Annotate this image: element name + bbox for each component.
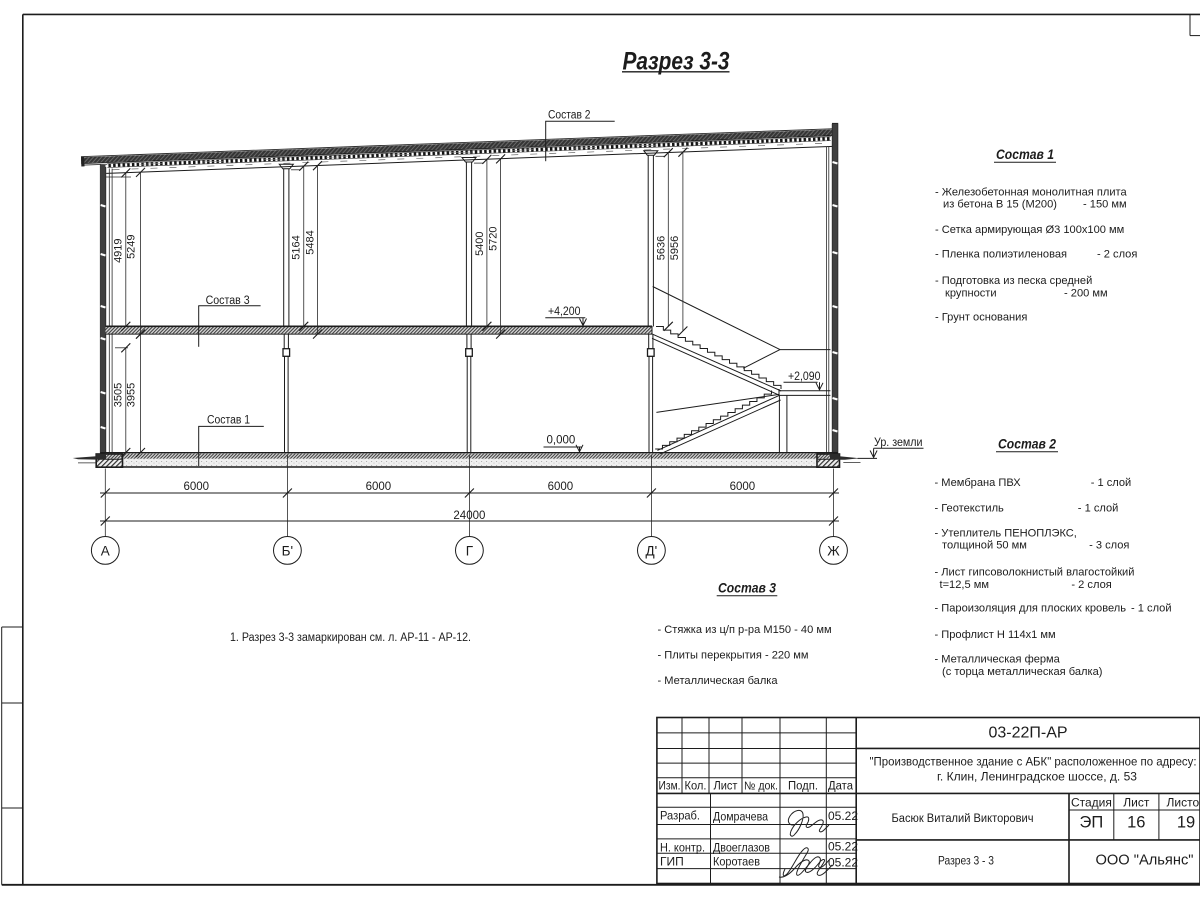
svg-text:t=12,5 мм: t=12,5 мм — [940, 579, 990, 591]
svg-text:- Профлист Н 114х1 мм: - Профлист Н 114х1 мм — [935, 629, 1056, 641]
svg-text:6000: 6000 — [548, 481, 574, 493]
svg-text:Состав 2: Состав 2 — [548, 110, 591, 122]
svg-text:- Железобетонная монолитная п: - Железобетонная монолитная плита — [935, 187, 1128, 199]
svg-text:- Пленка полиэтиленовая: - Пленка полиэтиленовая — [935, 249, 1067, 261]
svg-text:- Подготовка из песка средней: - Подготовка из песка средней — [935, 275, 1092, 287]
svg-text:- Геотекстиль: - Геотекстиль — [935, 503, 1005, 515]
svg-text:Лист: Лист — [1123, 796, 1150, 810]
svg-text:- 1 слой: - 1 слой — [1078, 503, 1119, 515]
svg-text:Изм.: Изм. — [659, 781, 681, 793]
svg-text:Разрез 3-3: Разрез 3-3 — [623, 47, 730, 75]
svg-text:- 150 мм: - 150 мм — [1083, 199, 1127, 211]
svg-text:ООО "Альянс": ООО "Альянс" — [1096, 852, 1194, 869]
svg-text:г. Клин, Ленинградское шоссе,: г. Клин, Ленинградское шоссе, д. 53 — [937, 770, 1137, 784]
svg-text:(с торца металлическая балка): (с торца металлическая балка) — [942, 666, 1102, 678]
svg-text:- Сетка армирующая Ø3 100х100: - Сетка армирующая Ø3 100х100 мм — [935, 224, 1124, 236]
svg-text:ГИП: ГИП — [660, 855, 684, 869]
svg-text:крупности: крупности — [945, 288, 997, 300]
svg-text:5720: 5720 — [488, 226, 500, 250]
svg-text:05.22: 05.22 — [828, 856, 858, 870]
svg-text:Басюк Виталий Викторович: Басюк Виталий Викторович — [892, 813, 1034, 825]
svg-text:Н. контр.: Н. контр. — [660, 841, 705, 855]
svg-text:- Мембрана ПВХ: - Мембрана ПВХ — [935, 477, 1022, 489]
svg-text:03-22П-АР: 03-22П-АР — [988, 725, 1067, 742]
svg-text:5249: 5249 — [126, 234, 138, 258]
svg-text:ЭП: ЭП — [1080, 814, 1104, 832]
svg-text:24000: 24000 — [453, 510, 485, 522]
svg-text:3955: 3955 — [126, 383, 138, 407]
svg-text:Состав 2: Состав 2 — [998, 436, 1056, 452]
svg-text:- 2 слоя: - 2 слоя — [1097, 249, 1137, 261]
svg-text:5400: 5400 — [474, 231, 486, 255]
svg-text:5956: 5956 — [669, 236, 681, 260]
svg-text:- Металлическая балка: - Металлическая балка — [658, 675, 779, 687]
svg-text:- 3 слоя: - 3 слоя — [1089, 540, 1129, 552]
svg-text:6000: 6000 — [730, 481, 756, 493]
svg-text:- 200 мм: - 200 мм — [1064, 288, 1108, 300]
svg-text:Ур. земли: Ур. земли — [874, 437, 923, 449]
svg-text:Состав 3: Состав 3 — [718, 580, 776, 596]
svg-text:Г: Г — [466, 543, 474, 558]
svg-text:6000: 6000 — [366, 481, 392, 493]
svg-text:1. Разрез 3-3 замаркирован см.: 1. Разрез 3-3 замаркирован см. л. АР-11 … — [230, 632, 471, 644]
svg-text:"Производственное здание с АБК: "Производственное здание с АБК" располож… — [870, 755, 1197, 769]
svg-text:Состав 1: Состав 1 — [207, 415, 250, 427]
svg-text:Ж: Ж — [827, 543, 840, 558]
svg-text:5636: 5636 — [655, 236, 667, 260]
svg-text:- 1 слой: - 1 слой — [1091, 477, 1132, 489]
svg-text:05.22: 05.22 — [828, 809, 858, 823]
svg-text:Разрез 3 - 3: Разрез 3 - 3 — [938, 854, 994, 868]
svg-text:- Грунт основания: - Грунт основания — [935, 312, 1027, 324]
svg-text:толщиной 50 мм: толщиной 50 мм — [942, 540, 1027, 552]
svg-text:- 1 слой: - 1 слой — [1131, 603, 1172, 615]
svg-text:Домрачева: Домрачева — [713, 810, 768, 824]
svg-text:+4,200: +4,200 — [548, 306, 581, 318]
svg-text:+2,090: +2,090 — [788, 371, 821, 383]
svg-text:- Металлическая ферма: - Металлическая ферма — [935, 654, 1061, 666]
svg-text:4919: 4919 — [113, 238, 125, 262]
svg-text:№ док.: № док. — [744, 781, 778, 793]
svg-text:0,000: 0,000 — [547, 435, 576, 447]
svg-text:Состав 3: Состав 3 — [206, 295, 250, 307]
svg-text:Стадия: Стадия — [1071, 796, 1112, 810]
svg-text:Листов: Листов — [1167, 796, 1200, 810]
svg-text:Дата: Дата — [828, 781, 854, 793]
svg-text:Кол.: Кол. — [685, 781, 707, 793]
svg-text:Б': Б' — [282, 543, 293, 558]
svg-text:16: 16 — [1127, 814, 1145, 832]
svg-text:- 2 слоя: - 2 слоя — [1071, 579, 1111, 591]
svg-text:- Пароизоляция для плоских кро: - Пароизоляция для плоских кровель — [935, 603, 1127, 615]
svg-text:из бетона В 15 (М200): из бетона В 15 (М200) — [943, 199, 1057, 211]
svg-text:19: 19 — [1177, 814, 1195, 832]
svg-text:Лист: Лист — [714, 781, 739, 793]
svg-text:5484: 5484 — [305, 230, 317, 254]
svg-text:- Плиты перекрытия - 220 мм: - Плиты перекрытия - 220 мм — [658, 650, 809, 662]
svg-text:Состав 1: Состав 1 — [996, 146, 1054, 162]
svg-text:- Стяжка из ц/п р-ра М150 - 40: - Стяжка из ц/п р-ра М150 - 40 мм — [658, 624, 832, 636]
svg-text:Двоеглазов: Двоеглазов — [713, 841, 770, 855]
svg-text:05.22: 05.22 — [828, 840, 858, 854]
svg-text:Разраб.: Разраб. — [660, 809, 700, 823]
svg-text:3505: 3505 — [113, 383, 125, 407]
svg-text:А: А — [101, 543, 110, 558]
svg-text:Д': Д' — [646, 543, 658, 558]
svg-text:6000: 6000 — [184, 481, 210, 493]
svg-text:Коротаев: Коротаев — [713, 855, 760, 869]
svg-text:- Утеплитель ПЕНОПЛЭКС,: - Утеплитель ПЕНОПЛЭКС, — [935, 528, 1077, 540]
svg-text:Подп.: Подп. — [788, 781, 818, 793]
svg-text:5164: 5164 — [291, 235, 303, 259]
svg-text:- Лист гипсоволокнистый влагос: - Лист гипсоволокнистый влагостойкий — [935, 567, 1135, 579]
